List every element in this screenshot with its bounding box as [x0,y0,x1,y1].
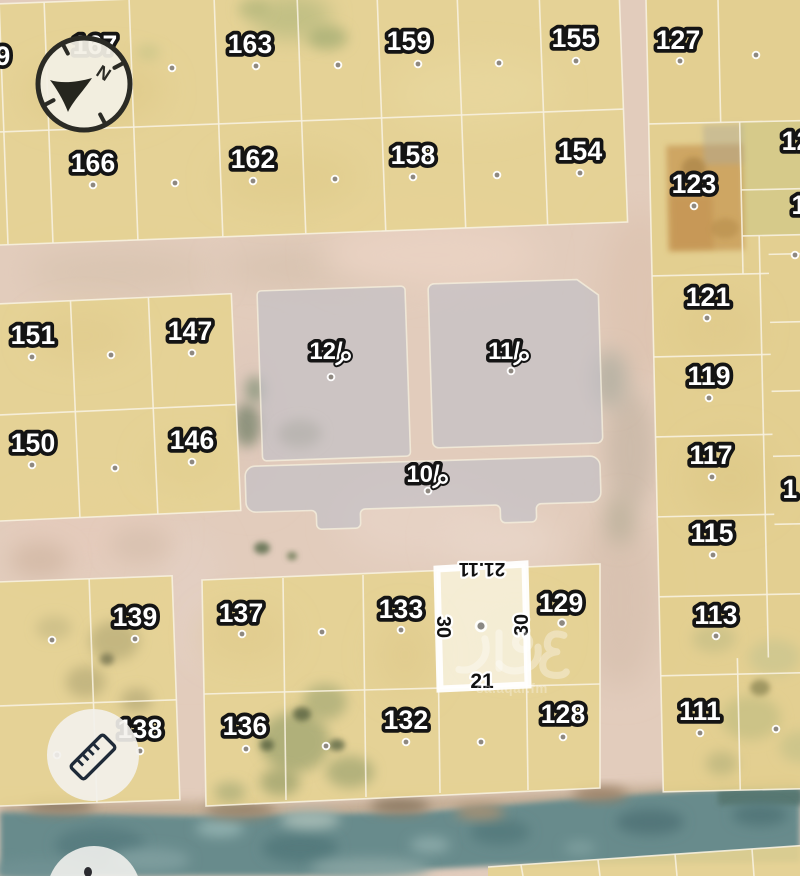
svg-text:1: 1 [792,190,800,220]
svg-text:111: 111 [679,696,721,726]
svg-text:115: 115 [690,518,733,548]
svg-text:117: 117 [689,440,732,470]
svg-text:136: 136 [223,711,268,741]
svg-text:113: 113 [694,600,737,630]
svg-text:121: 121 [686,282,731,312]
svg-text:129: 129 [539,588,584,618]
svg-text:30: 30 [432,616,454,638]
svg-text:9: 9 [0,41,10,71]
svg-text:154: 154 [558,136,603,166]
svg-text:sa.aqar.fm: sa.aqar.fm [476,681,548,696]
svg-text:146: 146 [170,425,215,455]
svg-text:125: 125 [782,126,800,156]
svg-text:119: 119 [687,361,730,391]
svg-text:162: 162 [231,144,276,174]
svg-text:21.11: 21.11 [458,558,505,579]
svg-text:127: 127 [656,25,701,55]
svg-text:132: 132 [384,705,429,735]
svg-text:158: 158 [391,140,436,170]
svg-text:155: 155 [552,23,597,53]
svg-text:123: 123 [672,169,717,199]
svg-text:139: 139 [113,602,158,632]
svg-text:133: 133 [379,594,424,624]
svg-text:150: 150 [11,428,56,458]
svg-text:128: 128 [541,699,586,729]
svg-text:147: 147 [168,316,213,346]
svg-text:1: 1 [783,474,798,504]
svg-text:163: 163 [228,29,273,59]
svg-text:159: 159 [387,26,432,56]
svg-text:137: 137 [219,598,264,628]
svg-text:166: 166 [71,148,116,178]
svg-text:151: 151 [11,320,56,350]
